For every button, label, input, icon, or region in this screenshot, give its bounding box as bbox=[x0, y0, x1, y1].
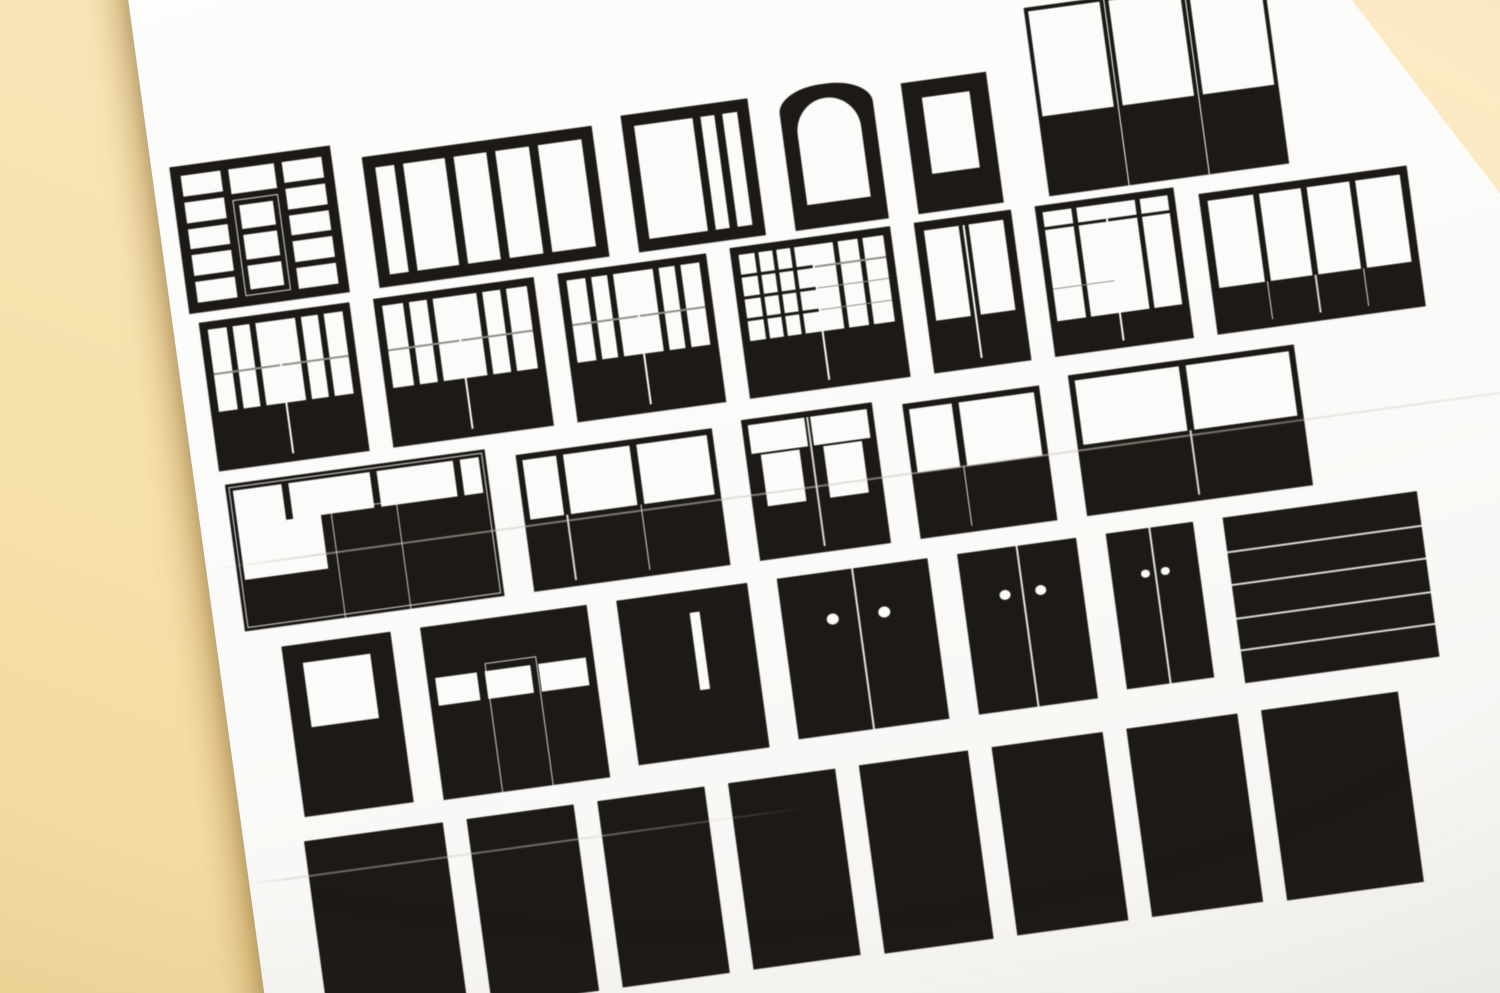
roller-shutter-door bbox=[1223, 491, 1440, 683]
door-lite bbox=[302, 654, 378, 728]
glazing-bar bbox=[388, 340, 460, 351]
print-sheet bbox=[120, 0, 1500, 993]
glass-pane bbox=[229, 163, 277, 194]
glazing-bar bbox=[815, 256, 887, 267]
bay-glass bbox=[1028, 2, 1113, 116]
glass-pane bbox=[184, 197, 227, 223]
thick-frame-door bbox=[901, 72, 1004, 214]
glazing-bar bbox=[640, 306, 706, 316]
door-lite bbox=[761, 450, 807, 507]
door-outline bbox=[331, 501, 413, 627]
handle-dot bbox=[999, 589, 1011, 600]
leaf-gap bbox=[1363, 268, 1370, 306]
glass-pane bbox=[296, 263, 339, 289]
glazing bbox=[634, 112, 753, 239]
bay-glass bbox=[1189, 0, 1274, 94]
handle-dot bbox=[1140, 569, 1150, 578]
display-glass bbox=[238, 515, 329, 580]
sliding-glass-unit bbox=[362, 126, 610, 288]
glass-pane bbox=[248, 261, 284, 290]
glazing-bar bbox=[818, 278, 890, 289]
leaf-glass bbox=[455, 286, 538, 378]
mullion-vertical bbox=[629, 445, 644, 506]
two-pane-door bbox=[914, 210, 1032, 374]
handle-dot bbox=[826, 613, 839, 625]
mullion-vertical bbox=[427, 299, 444, 382]
slat-gap bbox=[1236, 591, 1430, 620]
glass-pane bbox=[496, 146, 544, 258]
side-lites bbox=[181, 170, 238, 302]
blank-panel-2 bbox=[467, 804, 600, 993]
door-lite bbox=[823, 441, 869, 498]
glass-pane bbox=[375, 165, 408, 275]
double-door-handles-narrow bbox=[1106, 522, 1214, 689]
door-leaf bbox=[814, 440, 878, 499]
storefront-with-recessed-door bbox=[225, 449, 505, 631]
mullion-vertical bbox=[1301, 187, 1319, 275]
sheet-content bbox=[120, 0, 1500, 993]
arched-door bbox=[776, 78, 888, 231]
handle-dot bbox=[1035, 584, 1047, 595]
mullion-vertical bbox=[585, 277, 602, 360]
handle-dot bbox=[878, 606, 891, 618]
leaf-glass bbox=[924, 226, 971, 321]
leaf-gap bbox=[1149, 528, 1172, 684]
glass-pane bbox=[239, 201, 275, 230]
panel-gap bbox=[640, 505, 650, 570]
glazed-double-door-1 bbox=[199, 302, 370, 471]
inner-frame bbox=[228, 453, 501, 628]
glass-pane bbox=[403, 158, 459, 271]
double-door-handles-medium bbox=[957, 538, 1098, 715]
glass-pane bbox=[281, 157, 324, 183]
leaf-glass bbox=[276, 311, 354, 402]
glazing-bar bbox=[214, 364, 281, 375]
leaf-glass bbox=[812, 235, 895, 331]
blank-panel-7 bbox=[1126, 714, 1263, 917]
multipane-window-with-door bbox=[169, 145, 350, 314]
leaf-glass bbox=[634, 262, 711, 353]
mullion-vertical bbox=[500, 289, 517, 372]
mullion-vertical bbox=[249, 323, 266, 406]
mullion-vertical bbox=[556, 455, 571, 516]
leaf-gap bbox=[1267, 282, 1274, 320]
photo-stage bbox=[0, 0, 1500, 993]
mullion-vertical bbox=[476, 292, 493, 375]
panel-gap bbox=[963, 467, 973, 526]
glass-pane bbox=[538, 139, 596, 252]
glass-pane bbox=[289, 210, 332, 236]
transom-double-door bbox=[741, 402, 891, 561]
glass-pane bbox=[244, 231, 280, 260]
storefront-two-pane-small bbox=[902, 385, 1057, 538]
leaf-glass bbox=[968, 220, 1015, 315]
mullion-vertical bbox=[952, 402, 968, 467]
handle-dot bbox=[1160, 566, 1170, 575]
glass-pane bbox=[191, 250, 234, 276]
leaf-gap bbox=[851, 568, 874, 729]
bay-glass bbox=[1109, 0, 1194, 105]
leaf-glass bbox=[566, 272, 643, 363]
center-bay bbox=[229, 163, 291, 296]
mullion-vertical bbox=[227, 326, 244, 409]
slat-gap bbox=[1232, 558, 1426, 587]
glass-pane bbox=[453, 152, 501, 264]
storefront-two-pane-wide bbox=[1068, 344, 1313, 516]
glazing-bar bbox=[821, 299, 893, 310]
mullion-vertical bbox=[607, 274, 624, 357]
leaf-glass bbox=[208, 321, 286, 412]
door-lite bbox=[922, 91, 980, 174]
leaf-gap bbox=[1016, 546, 1039, 707]
panel-gap bbox=[1190, 430, 1200, 495]
blank-panel-8 bbox=[1261, 692, 1424, 901]
leaf-glass bbox=[382, 296, 465, 388]
glass-pane bbox=[181, 170, 224, 196]
side-lites bbox=[281, 157, 338, 289]
glazing-bar bbox=[282, 355, 349, 366]
mixed-lite-double-door bbox=[1035, 187, 1194, 357]
sheet-rows bbox=[120, 0, 1500, 993]
blank-panel-6 bbox=[992, 732, 1129, 935]
door-with-window bbox=[281, 632, 413, 817]
storefront-three-pane bbox=[516, 428, 731, 592]
mullion-vertical bbox=[281, 483, 293, 520]
leaf-glass bbox=[738, 245, 821, 341]
slit-light bbox=[690, 611, 710, 690]
glazing bbox=[375, 139, 596, 274]
glass-pane bbox=[188, 224, 231, 250]
glazing-bar bbox=[461, 330, 533, 341]
leaf-glass bbox=[1106, 195, 1182, 313]
mullion-vertical bbox=[317, 314, 334, 397]
door-leaf bbox=[752, 448, 816, 507]
blank-panel-1 bbox=[304, 822, 470, 993]
mullion-vertical bbox=[403, 302, 420, 385]
display-window-sidelights bbox=[620, 98, 766, 252]
glazed-double-door-3 bbox=[557, 253, 726, 422]
mullion-vertical bbox=[674, 265, 691, 348]
mullion-vertical bbox=[295, 317, 312, 400]
mullion-vertical bbox=[453, 460, 465, 497]
glass-pane bbox=[195, 277, 238, 303]
panel-gap bbox=[567, 515, 577, 580]
blank-panel-4 bbox=[728, 769, 861, 970]
four-bay-folding-door bbox=[1198, 165, 1425, 334]
glazing-bar bbox=[572, 315, 638, 325]
door-with-slit-light bbox=[616, 583, 769, 765]
glass-pane bbox=[285, 183, 328, 209]
slat-gap bbox=[1241, 622, 1435, 651]
mullion-vertical bbox=[653, 268, 670, 351]
three-bay-storefront bbox=[1024, 0, 1290, 196]
door-with-light-band bbox=[420, 605, 610, 800]
leaf-gap bbox=[1315, 275, 1322, 313]
blank-panel-5 bbox=[859, 750, 994, 953]
glazed-double-door-2 bbox=[373, 277, 554, 448]
mullion-vertical bbox=[1349, 181, 1367, 269]
fine-grid-double-door bbox=[729, 226, 910, 399]
glass-pane bbox=[292, 236, 335, 262]
glass-pane bbox=[634, 118, 708, 239]
slat-gap bbox=[1227, 525, 1421, 554]
arched-pane bbox=[793, 93, 871, 205]
door-leaf bbox=[455, 286, 545, 429]
mullion-vertical bbox=[1253, 194, 1271, 282]
inset-door bbox=[233, 194, 291, 296]
double-door-handles-wide bbox=[777, 558, 950, 739]
mullion-vertical bbox=[1178, 365, 1194, 430]
blank-panel-3 bbox=[597, 787, 730, 988]
